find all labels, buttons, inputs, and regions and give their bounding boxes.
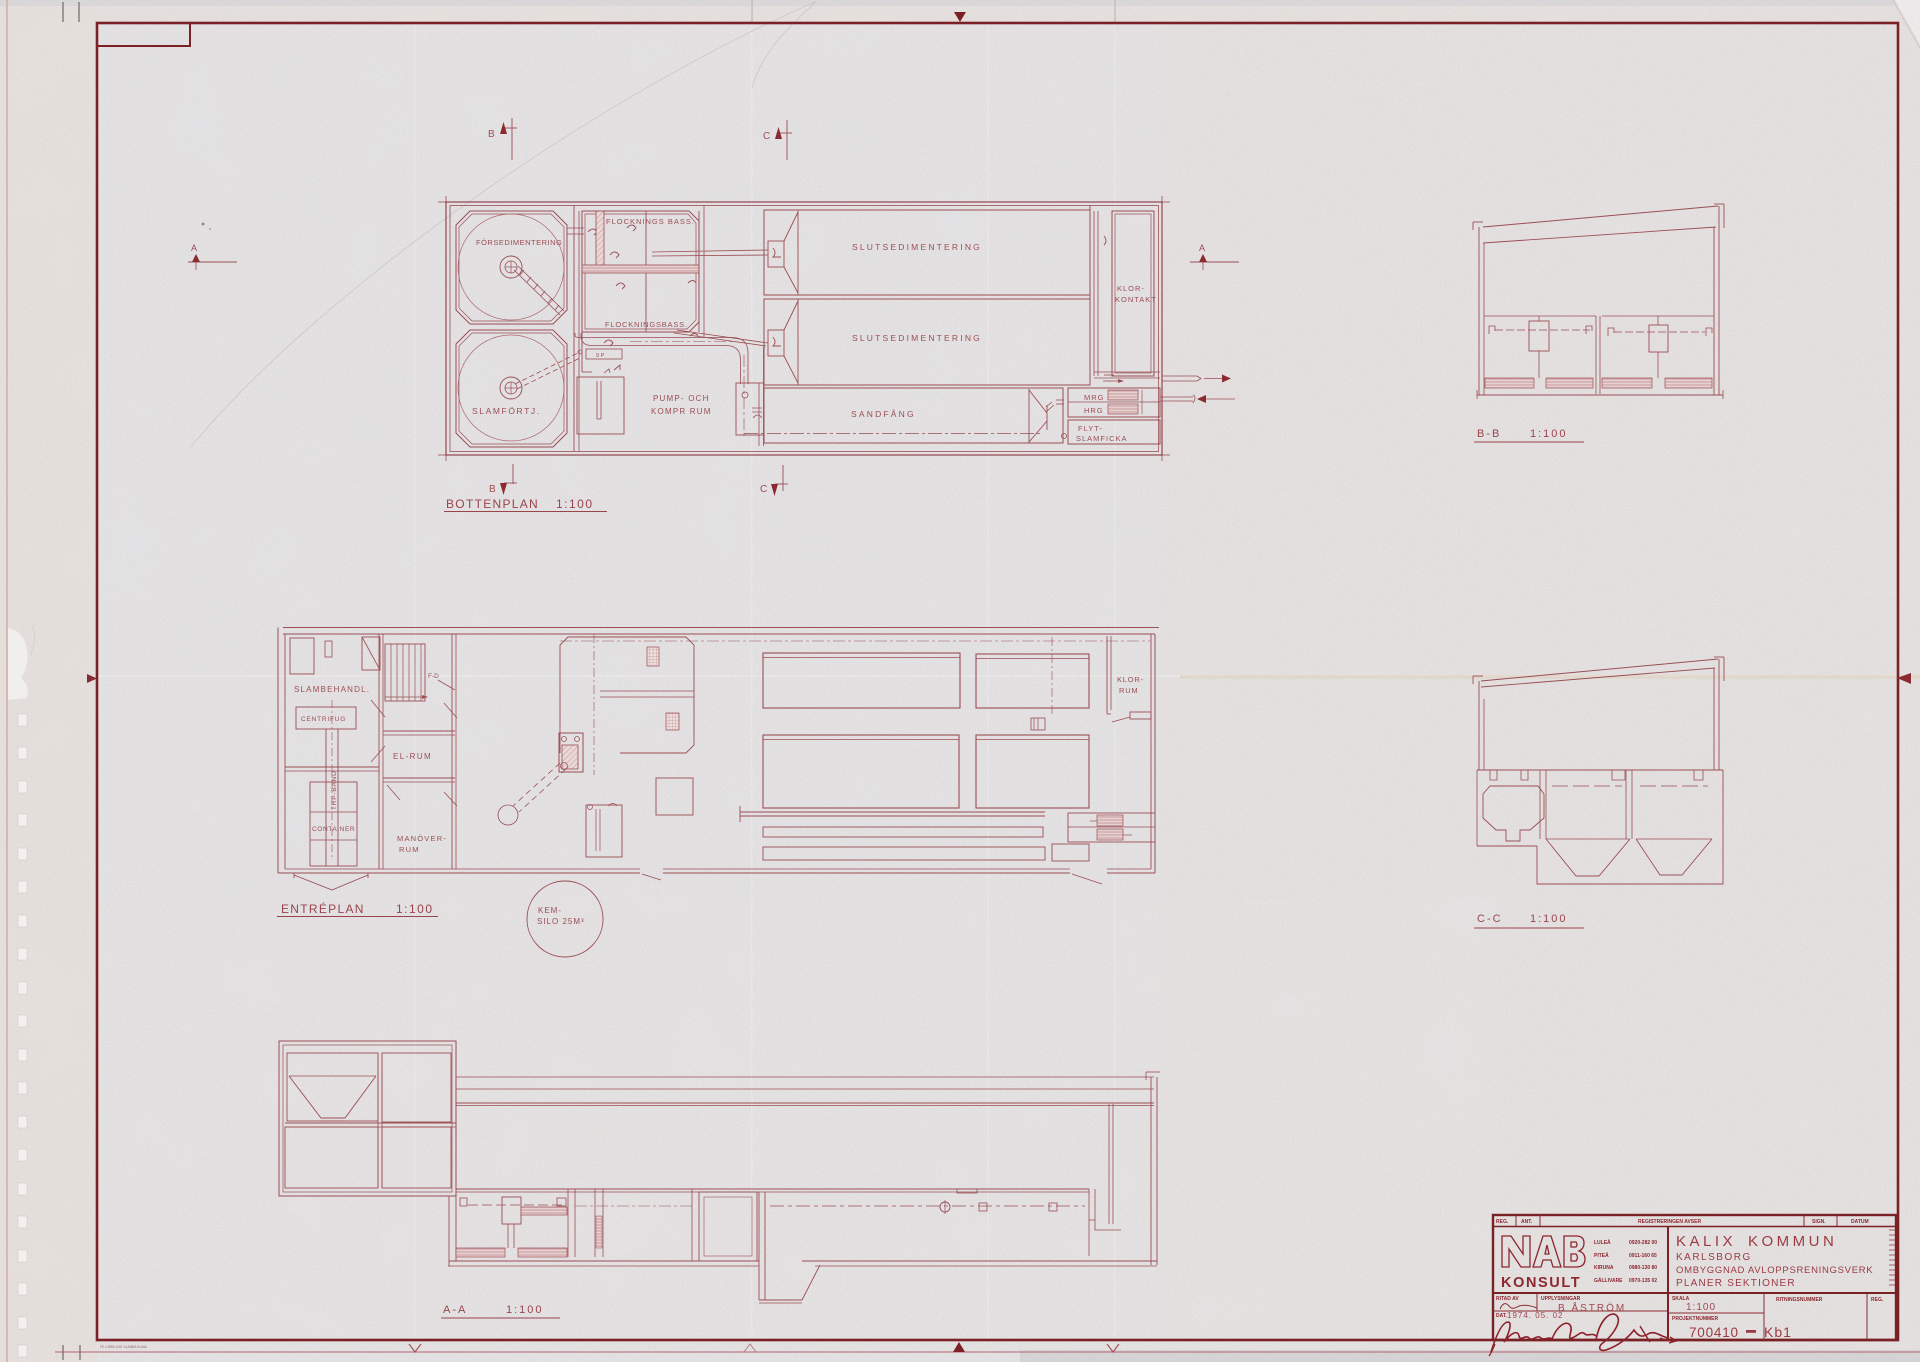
svg-text:DAT.: DAT. xyxy=(1496,1313,1507,1319)
svg-text:TRP-BAND: TRP-BAND xyxy=(331,770,338,810)
svg-text:DATUM: DATUM xyxy=(1851,1219,1869,1225)
svg-text:KARLSBORG: KARLSBORG xyxy=(1676,1252,1752,1263)
svg-text:KONSULT: KONSULT xyxy=(1501,1275,1581,1291)
svg-text:SIGN.: SIGN. xyxy=(1812,1219,1826,1225)
svg-text:B: B xyxy=(489,484,496,495)
svg-text:CONTAINER: CONTAINER xyxy=(312,826,355,833)
svg-text:RUM: RUM xyxy=(1119,686,1138,695)
svg-text:SANDFÅNG: SANDFÅNG xyxy=(851,409,916,419)
svg-text:UPPLYSNINGAR: UPPLYSNINGAR xyxy=(1541,1296,1581,1302)
svg-text:B: B xyxy=(488,129,495,140)
svg-text:SLAMFICKA: SLAMFICKA xyxy=(1076,434,1128,443)
svg-text:LULEÅ: LULEÅ xyxy=(1594,1239,1611,1246)
svg-text:ANT.: ANT. xyxy=(1521,1219,1533,1225)
svg-text:1:100: 1:100 xyxy=(1686,1302,1716,1313)
svg-text:HRG: HRG xyxy=(1084,406,1104,415)
svg-text:GÄLLIVARE: GÄLLIVARE xyxy=(1594,1277,1623,1284)
svg-text:PUMP- OCH: PUMP- OCH xyxy=(653,394,710,403)
svg-text:FE 4 5985 1201 SLAMBA KLIMA: FE 4 5985 1201 SLAMBA KLIMA xyxy=(100,1345,148,1349)
svg-text:PROJEKTNUMMER: PROJEKTNUMMER xyxy=(1672,1316,1719,1322)
svg-text:REGISTRERINGEN AVSER: REGISTRERINGEN AVSER xyxy=(1638,1219,1701,1225)
svg-text:1:100: 1:100 xyxy=(396,902,434,916)
svg-text:1:100: 1:100 xyxy=(556,497,594,511)
svg-text:1:100: 1:100 xyxy=(1530,428,1568,440)
svg-text:RITAD AV: RITAD AV xyxy=(1496,1296,1519,1302)
svg-text:RUM: RUM xyxy=(399,845,420,854)
svg-text:700410: 700410 xyxy=(1689,1325,1739,1340)
svg-text:PLANER SEKTIONER: PLANER SEKTIONER xyxy=(1676,1278,1796,1289)
svg-text:MANÖVER-: MANÖVER- xyxy=(397,834,447,843)
svg-text:KALIX: KALIX xyxy=(1676,1233,1736,1250)
svg-text:ENTRÉPLAN: ENTRÉPLAN xyxy=(281,901,365,916)
svg-text:A-A: A-A xyxy=(443,1304,467,1316)
svg-text:FLOCKNINGS BASS.: FLOCKNINGS BASS. xyxy=(606,217,695,226)
svg-text:SLUTSEDIMENTERING: SLUTSEDIMENTERING xyxy=(852,242,982,252)
svg-text:SLAMBEHANDL.: SLAMBEHANDL. xyxy=(294,685,370,694)
svg-text:REG.: REG. xyxy=(1871,1297,1884,1303)
svg-text:1974. 05. 02: 1974. 05. 02 xyxy=(1507,1311,1563,1320)
svg-text:1:100: 1:100 xyxy=(1530,913,1568,925)
svg-text:PITEÅ: PITEÅ xyxy=(1594,1252,1609,1259)
svg-text:SILO 25M³: SILO 25M³ xyxy=(537,917,585,926)
svg-text:KLOR-: KLOR- xyxy=(1117,284,1145,293)
svg-text:F-D: F-D xyxy=(428,673,439,680)
svg-text:0970-135 02: 0970-135 02 xyxy=(1629,1278,1657,1284)
svg-text:Kb1: Kb1 xyxy=(1764,1324,1792,1340)
svg-text:A: A xyxy=(1199,243,1205,253)
svg-text:OMBYGGNAD AVLOPPSRENINGSVERK: OMBYGGNAD AVLOPPSRENINGSVERK xyxy=(1676,1265,1873,1276)
svg-text:KEM-: KEM- xyxy=(538,906,562,915)
svg-text:RITNINGSNUMMER: RITNINGSNUMMER xyxy=(1776,1297,1823,1303)
svg-text:KIRUNA: KIRUNA xyxy=(1594,1265,1614,1271)
svg-text:C-C: C-C xyxy=(1477,913,1503,925)
svg-text:KONTAKT: KONTAKT xyxy=(1115,295,1157,304)
svg-text:1:100: 1:100 xyxy=(506,1304,544,1316)
svg-text:SLUTSEDIMENTERING: SLUTSEDIMENTERING xyxy=(852,333,982,343)
svg-text:A: A xyxy=(191,243,197,253)
svg-text:REG.: REG. xyxy=(1496,1219,1509,1225)
svg-text:FÖRSEDIMENTERING: FÖRSEDIMENTERING xyxy=(476,238,562,247)
svg-text:FLOCKNINGSBASS.: FLOCKNINGSBASS. xyxy=(605,320,688,329)
svg-text:KOMPR RUM: KOMPR RUM xyxy=(651,407,712,416)
svg-text:CENTRIFUG: CENTRIFUG xyxy=(301,716,346,723)
svg-text:FLYT-: FLYT- xyxy=(1078,424,1103,433)
svg-text:B ÅSTRÖM: B ÅSTRÖM xyxy=(1558,1301,1626,1314)
svg-text:SLAMFÖRTJ.: SLAMFÖRTJ. xyxy=(472,406,541,416)
svg-text:KLOR-: KLOR- xyxy=(1117,675,1144,684)
svg-text:0911-160 65: 0911-160 65 xyxy=(1629,1253,1657,1259)
svg-text:MRG: MRG xyxy=(1084,393,1105,402)
svg-text:C: C xyxy=(760,484,767,495)
svg-text:9 P: 9 P xyxy=(596,353,605,359)
svg-text:B-B: B-B xyxy=(1477,428,1501,440)
svg-text:C: C xyxy=(763,131,770,142)
svg-text:BOTTENPLAN: BOTTENPLAN xyxy=(446,497,539,511)
svg-text:0920-282 00: 0920-282 00 xyxy=(1629,1240,1657,1246)
svg-text:KOMMUN: KOMMUN xyxy=(1748,1233,1837,1250)
svg-text:0980-130 80: 0980-130 80 xyxy=(1629,1265,1657,1271)
svg-text:EL-RUM: EL-RUM xyxy=(393,752,432,761)
